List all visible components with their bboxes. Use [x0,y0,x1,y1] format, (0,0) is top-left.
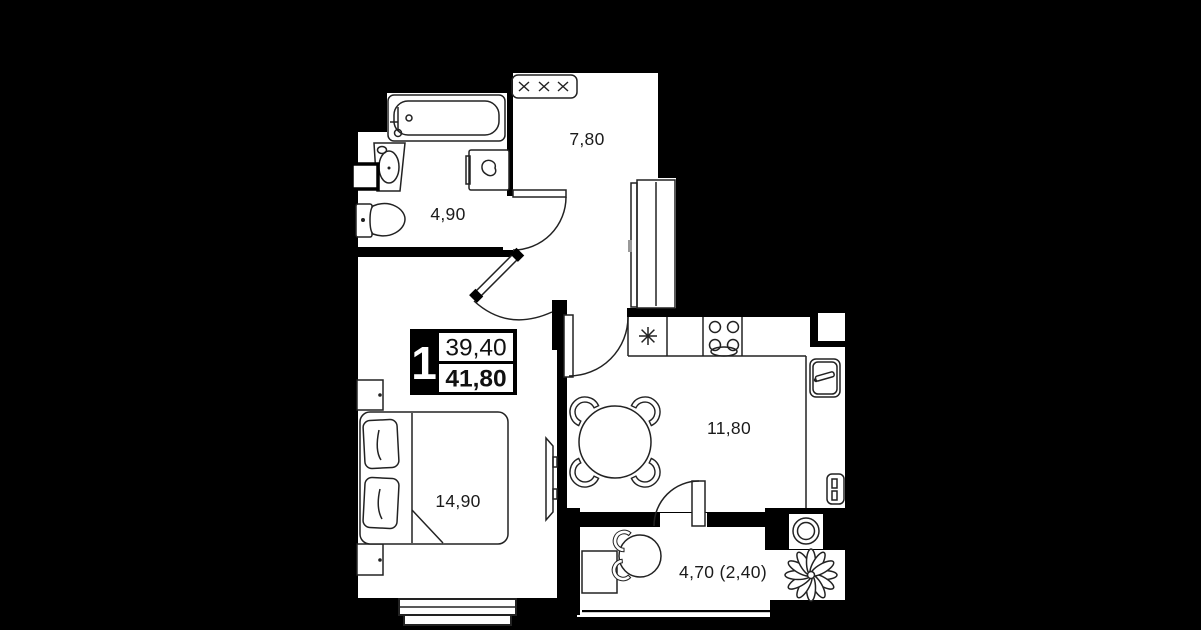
balcony-railing [582,610,770,612]
balcony-door-leaf [692,481,705,526]
unit-badge: 1 39,40 41,80 [410,329,517,395]
floorplan-canvas: 7,80 4,90 11,80 14,90 4,70 (2,40) 1 39,4… [0,0,1201,630]
bathroom-door-leaf [513,190,566,197]
room-area-label-hallway: 7,80 [569,129,604,149]
room-area-label-balcony: 4,70 (2,40) [679,562,767,582]
unit-total-area: 41,80 [445,366,506,393]
washing-machine [469,150,509,190]
pillow [363,477,400,529]
dining-table [579,406,651,478]
wall-bathroom-bottom [345,247,513,257]
room-area-label-bathroom: 4,90 [430,204,465,224]
nightstand-knob [378,393,382,397]
pillow [363,419,399,469]
balcony-table [582,551,617,593]
unit-rooms-count: 1 [411,337,437,389]
toilet-button [361,218,365,222]
radiator [827,474,844,504]
refrigerator-symbol [639,327,657,345]
room-area-label-bedroom: 14,90 [435,491,480,511]
kitchen-door-leaf [564,315,573,377]
bathroom-door-opening [503,196,513,250]
vent-shaft-kitchen [818,313,845,341]
tv [546,438,553,520]
kitchen-sink [810,359,840,397]
nightstand-knob [378,558,382,562]
bedroom-window [399,599,516,625]
balcony-chair [619,535,661,577]
washbasin-drain [388,167,391,170]
unit-living-area: 39,40 [445,335,506,362]
floorplan-svg: 7,80 4,90 11,80 14,90 4,70 (2,40) 1 39,4… [0,0,1201,630]
room-area-label-kitchen: 11,80 [707,418,751,438]
balcony-partition [577,527,580,615]
wall-kitchen-top [627,308,818,317]
wardrobe-handle [628,240,632,252]
wall-niche [352,164,378,189]
